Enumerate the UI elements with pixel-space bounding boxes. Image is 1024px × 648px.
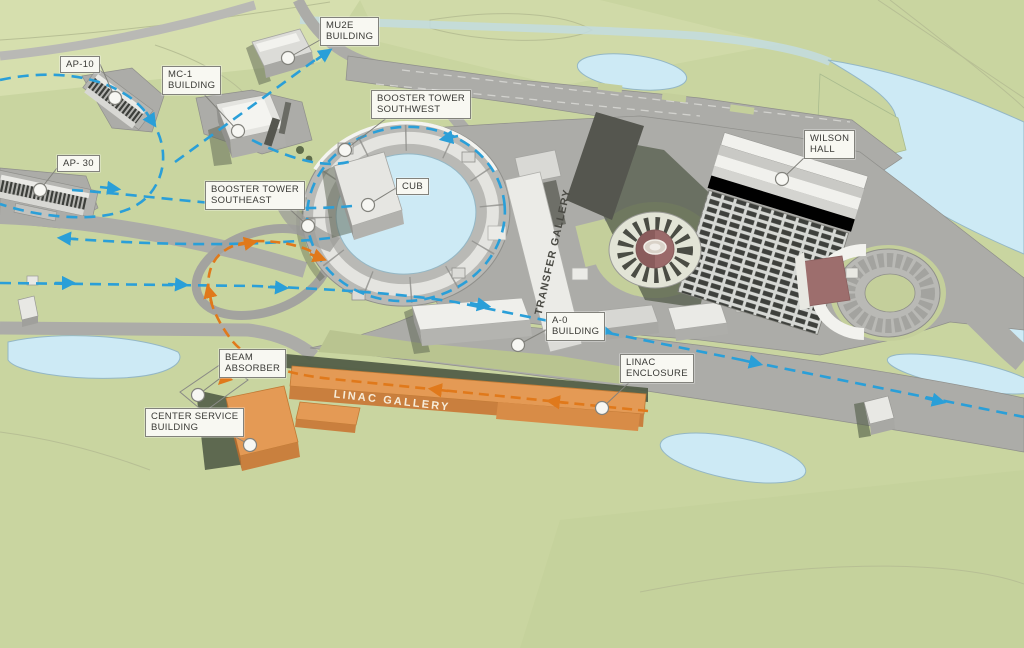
label-mu2e-building: MU2EBUILDING (320, 17, 379, 46)
marker-mu2e-building (282, 52, 295, 65)
label-ap-30: AP- 30 (57, 155, 100, 172)
marker-center-service-building (244, 439, 257, 452)
label-booster-tower-southeast: BOOSTER TOWERSOUTHEAST (205, 181, 305, 210)
marker-wilson-hall (776, 173, 789, 186)
marker-booster-tower-southeast (302, 220, 315, 233)
label-center-service-building: CENTER SERVICEBUILDING (145, 408, 244, 437)
marker-a-0-building (512, 339, 525, 352)
label-booster-tower-southwest: BOOSTER TOWERSOUTHWEST (371, 90, 471, 119)
marker-mc-1-building (232, 125, 245, 138)
label-wilson-hall: WILSONHALL (804, 130, 855, 159)
auditorium (609, 212, 701, 288)
label-linac-enclosure: LINACENCLOSURE (620, 354, 694, 383)
marker-cub (362, 199, 375, 212)
marker-ap-30 (34, 184, 47, 197)
label-beam-absorber: BEAMABSORBER (219, 349, 286, 378)
marker-beam-absorber (192, 389, 205, 402)
site-map-illustration (0, 0, 1024, 648)
label-a-0-building: A-0BUILDING (546, 312, 605, 341)
label-mc-1-building: MC-1BUILDING (162, 66, 221, 95)
marker-linac-enclosure (596, 402, 609, 415)
marker-booster-tower-southwest (339, 144, 352, 157)
label-cub: CUB (396, 178, 429, 195)
label-ap-10: AP-10 (60, 56, 100, 73)
marker-ap-10 (109, 92, 122, 105)
fermilab-site-map: AP-10AP- 30MC-1BUILDINGMU2EBUILDINGBOOST… (0, 0, 1024, 648)
